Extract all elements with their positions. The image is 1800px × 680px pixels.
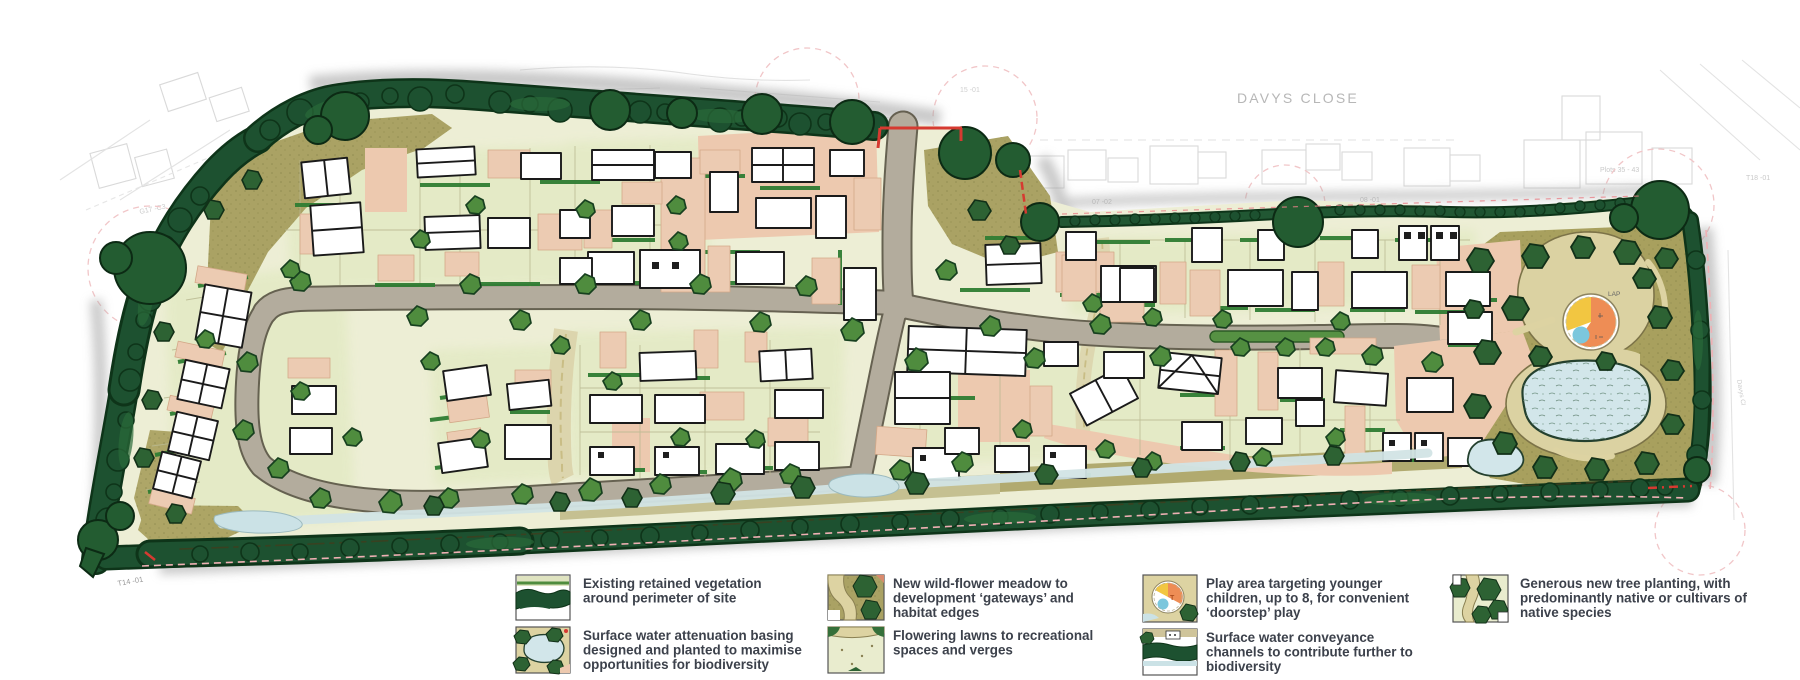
svg-text:native species: native species	[1520, 605, 1612, 620]
svg-text:predominantly native or cultiv: predominantly native or cultivars of	[1520, 591, 1747, 606]
svg-text:biodiversity: biodiversity	[1206, 659, 1282, 674]
svg-text:New wild-flower meadow to: New wild-flower meadow to	[893, 576, 1068, 591]
svg-text:children, up to 8, for conveni: children, up to 8, for convenient	[1206, 591, 1410, 606]
svg-text:Surface water conveyance: Surface water conveyance	[1206, 630, 1374, 645]
svg-text:Flowering lawns to recreationa: Flowering lawns to recreational	[893, 628, 1093, 643]
svg-text:channels to contribute further: channels to contribute further to	[1206, 645, 1413, 660]
svg-text:G17 -C3: G17 -C3	[139, 204, 166, 216]
svg-text:Generous new tree planting, wi: Generous new tree planting, with	[1520, 576, 1731, 591]
svg-text:T: T	[1170, 595, 1175, 602]
svg-text:DAVYS CLOSE: DAVYS CLOSE	[1237, 90, 1359, 106]
svg-text:designed and planted to maximi: designed and planted to maximise	[583, 643, 802, 658]
svg-text:15 -01: 15 -01	[960, 87, 980, 94]
svg-text:Plots 35 - 43: Plots 35 - 43	[1600, 167, 1639, 174]
svg-text:around perimeter of site: around perimeter of site	[583, 591, 736, 606]
svg-text:opportunities for biodiversity: opportunities for biodiversity	[583, 657, 770, 672]
svg-text:‘doorstep’ play: ‘doorstep’ play	[1206, 605, 1301, 620]
svg-text:development ‘gateways’ and: development ‘gateways’ and	[893, 591, 1074, 606]
svg-text:Surface water attenuation basi: Surface water attenuation basing	[583, 628, 794, 643]
svg-text:T14 -01: T14 -01	[117, 575, 144, 588]
svg-text:T18 -01: T18 -01	[1746, 175, 1770, 182]
svg-text:spaces and verges: spaces and verges	[893, 643, 1013, 658]
svg-text:Play area targeting younger: Play area targeting younger	[1206, 576, 1383, 591]
svg-text:Existing retained vegetation: Existing retained vegetation	[583, 576, 762, 591]
svg-text:Davys Cl: Davys Cl	[1735, 379, 1747, 406]
svg-text:LAP: LAP	[1608, 291, 1620, 298]
svg-text:habitat edges: habitat edges	[893, 605, 979, 620]
